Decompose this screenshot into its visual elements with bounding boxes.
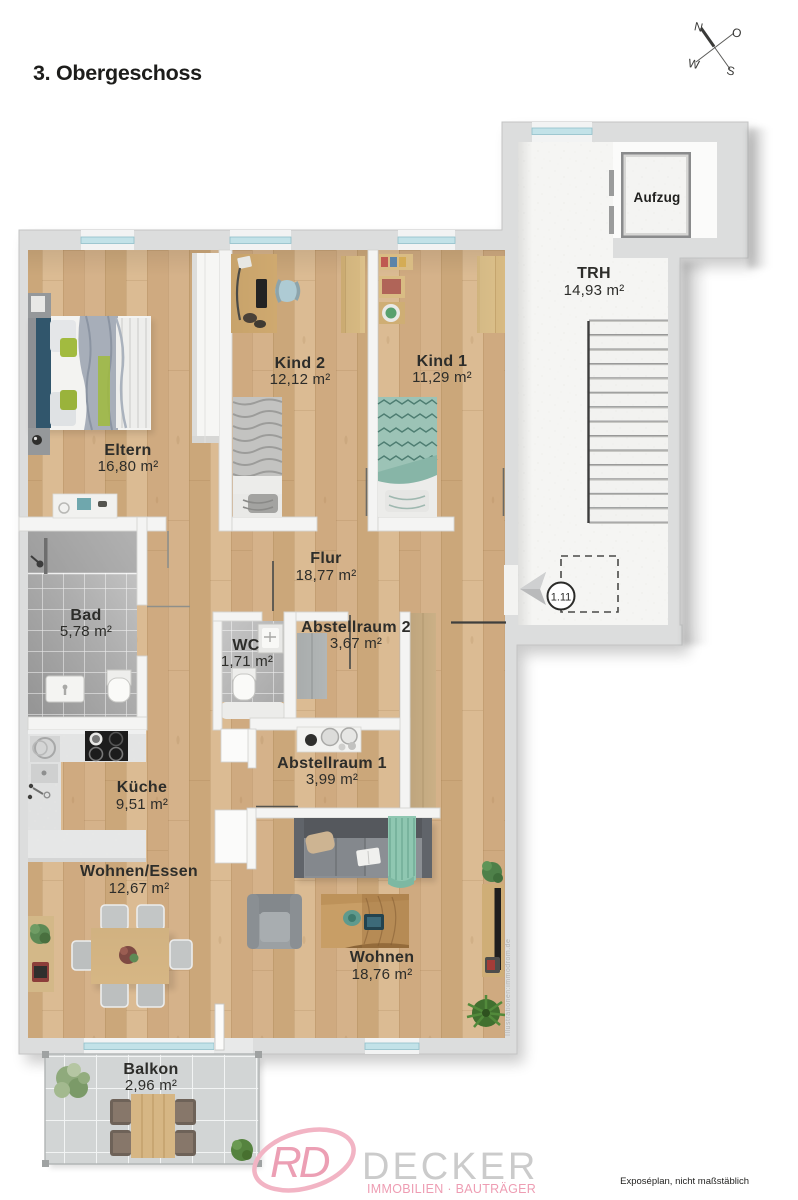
svg-text:16,80 m²: 16,80 m² (98, 458, 159, 475)
svg-text:TRH: TRH (577, 265, 611, 282)
svg-text:12,67 m²: 12,67 m² (109, 880, 170, 897)
svg-text:18,76 m²: 18,76 m² (352, 966, 413, 983)
svg-text:Eltern: Eltern (104, 442, 151, 459)
svg-text:IMMOBILIEN · BAUTRÄGER: IMMOBILIEN · BAUTRÄGER (367, 1182, 536, 1196)
svg-text:3,67 m²: 3,67 m² (330, 635, 382, 652)
svg-text:Balkon: Balkon (123, 1061, 178, 1078)
svg-text:Wohnen/Essen: Wohnen/Essen (80, 863, 198, 880)
svg-text:Kind 2: Kind 2 (275, 355, 326, 372)
svg-text:RD: RD (270, 1138, 330, 1187)
svg-text:Abstellraum 2: Abstellraum 2 (301, 619, 411, 636)
svg-text:Exposéplan, nicht maßstäblich: Exposéplan, nicht maßstäblich (620, 1176, 749, 1187)
svg-text:Kind 1: Kind 1 (417, 353, 468, 370)
svg-text:3. Obergeschoss: 3. Obergeschoss (33, 61, 202, 85)
svg-text:1,71 m²: 1,71 m² (221, 653, 273, 670)
svg-text:Wohnen: Wohnen (350, 949, 415, 966)
svg-text:9,51 m²: 9,51 m² (116, 796, 168, 813)
svg-text:5,78 m²: 5,78 m² (60, 623, 112, 640)
svg-text:Bad: Bad (70, 607, 101, 624)
svg-text:Flur: Flur (310, 550, 341, 567)
svg-text:1.11: 1.11 (551, 592, 572, 604)
svg-text:Illustrationen:immodrom.de: Illustrationen:immodrom.de (505, 939, 512, 1036)
svg-text:18,77 m²: 18,77 m² (296, 567, 357, 584)
svg-text:14,93 m²: 14,93 m² (564, 282, 625, 299)
svg-text:Aufzug: Aufzug (634, 190, 681, 205)
svg-text:Abstellraum 1: Abstellraum 1 (277, 755, 387, 772)
svg-text:3,99 m²: 3,99 m² (306, 771, 358, 788)
svg-text:Küche: Küche (117, 779, 167, 796)
svg-text:2,96 m²: 2,96 m² (125, 1077, 177, 1094)
svg-text:WC: WC (232, 637, 259, 654)
svg-text:11,29 m²: 11,29 m² (412, 369, 472, 386)
svg-text:12,12 m²: 12,12 m² (270, 371, 331, 388)
